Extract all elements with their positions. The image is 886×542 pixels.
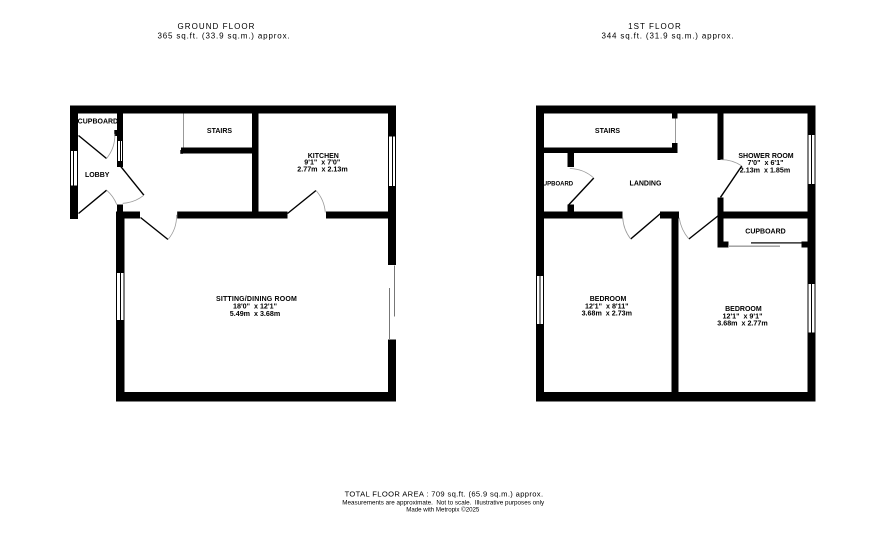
svg-text:2.77m x 2.13m: 2.77m x 2.13m [297, 166, 347, 174]
svg-text:3.68m x 2.77m: 3.68m x 2.77m [717, 320, 767, 328]
svg-text:STAIRS: STAIRS [207, 128, 232, 135]
svg-text:5.49m x 3.68m: 5.49m x 3.68m [230, 310, 280, 318]
svg-text:CUPBOARD: CUPBOARD [78, 119, 118, 126]
svg-text:TOTAL FLOOR AREA : 709 sq.ft.: TOTAL FLOOR AREA : 709 sq.ft. (65.9 sq.m… [345, 489, 544, 498]
svg-text:2.13m x 1.85m: 2.13m x 1.85m [740, 166, 790, 174]
svg-text:LOBBY: LOBBY [85, 172, 110, 179]
svg-text:1ST FLOOR: 1ST FLOOR [628, 22, 682, 31]
svg-text:CUPBOARD: CUPBOARD [745, 228, 785, 235]
svg-text:GROUND FLOOR: GROUND FLOOR [178, 22, 256, 31]
svg-text:365 sq.ft. (33.9 sq.m.) approx: 365 sq.ft. (33.9 sq.m.) approx. [157, 32, 290, 41]
svg-text:LANDING: LANDING [630, 181, 662, 188]
svg-text:Made with Metropix ©2025: Made with Metropix ©2025 [406, 507, 480, 514]
svg-text:344 sq.ft. (31.9 sq.m.) approx: 344 sq.ft. (31.9 sq.m.) approx. [601, 32, 734, 41]
svg-text:STAIRS: STAIRS [595, 128, 620, 135]
svg-text:3.68m x 2.73m: 3.68m x 2.73m [582, 310, 632, 318]
